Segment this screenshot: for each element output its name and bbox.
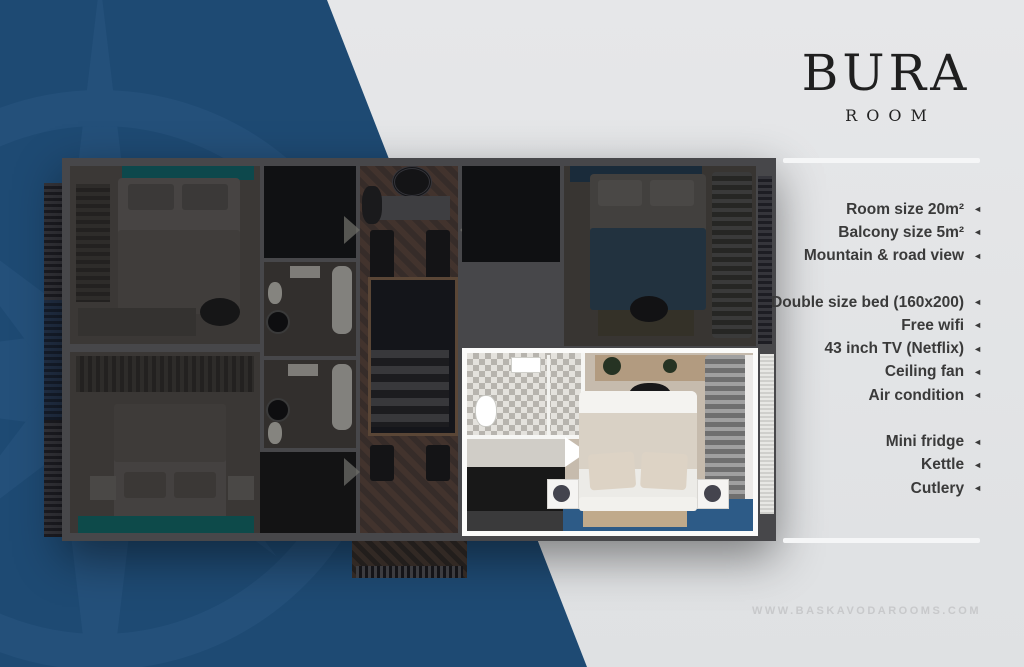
stairwell [368, 277, 458, 436]
features-list: Room size 20m²◄ Balcony size 5m²◄ Mounta… [662, 198, 982, 523]
feature-label: Balcony size 5m² [838, 224, 964, 242]
bathtub [332, 266, 352, 334]
balcony-railing [356, 566, 463, 578]
left-arrow-icon: ◄ [973, 321, 982, 330]
bench [370, 445, 394, 481]
sink [511, 357, 541, 373]
sink [290, 266, 320, 278]
pillow [182, 184, 228, 210]
toilet [268, 422, 282, 444]
left-arrow-icon: ◄ [973, 345, 982, 354]
wardrobe [76, 356, 254, 392]
mirror [266, 310, 290, 334]
nightstand [228, 476, 254, 500]
feature-item: Double size bed (160x200)◄ [662, 291, 982, 314]
landing-floor [467, 439, 565, 467]
feature-label: Double size bed (160x200) [771, 294, 964, 312]
brand-logo-subtitle: ROOM [770, 106, 1002, 125]
left-arrow-icon: ◄ [973, 484, 982, 493]
terrace-edge [467, 511, 565, 531]
feature-item: Ceiling fan◄ [662, 361, 982, 384]
feature-label: Free wifi [901, 317, 964, 335]
pillow [588, 451, 636, 490]
feature-label: Kettle [921, 456, 964, 474]
teal-balcony-floor [78, 516, 254, 533]
roof-terrace [264, 166, 356, 258]
feature-group-size: Room size 20m²◄ Balcony size 5m²◄ Mounta… [662, 198, 982, 268]
feature-item: Air condition◄ [662, 384, 982, 407]
toilet [475, 395, 497, 427]
feature-item: Balcony size 5m²◄ [662, 221, 982, 244]
roof-terrace [260, 452, 356, 533]
pillow [174, 472, 216, 498]
left-arrow-icon: ◄ [973, 461, 982, 470]
round-rug [392, 166, 432, 198]
stairs [371, 350, 449, 427]
desk [78, 308, 196, 336]
feature-label: Cutlery [911, 480, 964, 498]
pillow [128, 184, 174, 210]
pillow [598, 180, 642, 206]
plant [603, 357, 621, 375]
toilet [268, 282, 282, 304]
bura-room-flyer: BURA ROOM Room size 20m²◄ Balcony size 5… [0, 0, 1024, 667]
bench [426, 445, 450, 481]
left-arrow-icon: ◄ [973, 368, 982, 377]
bench [370, 230, 394, 280]
coat-rack [362, 186, 382, 224]
feature-label: Mountain & road view [804, 247, 964, 265]
feature-item: Mini fridge◄ [662, 430, 982, 453]
left-arrow-icon: ◄ [973, 228, 982, 237]
blanket [114, 404, 226, 462]
left-arrow-icon: ◄ [973, 391, 982, 400]
left-arrow-icon: ◄ [973, 205, 982, 214]
lamp [553, 485, 570, 502]
bathtub [332, 364, 352, 430]
feature-label: Ceiling fan [885, 363, 964, 381]
feature-label: 43 inch TV (Netflix) [825, 340, 965, 358]
chair [200, 298, 240, 326]
mirror [266, 398, 290, 422]
feature-group-kitchen: Mini fridge◄ Kettle◄ Cutlery◄ [662, 430, 982, 500]
feature-label: Mini fridge [886, 433, 964, 451]
feature-label: Air condition [869, 387, 965, 405]
left-balcony-panel [44, 300, 64, 420]
bottom-balcony [352, 541, 467, 578]
website-url: WWW.BASKAVODAROOMS.COM [752, 605, 981, 617]
feature-item: Room size 20m²◄ [662, 198, 982, 221]
sink [288, 364, 318, 376]
brand-logo: BURA [770, 48, 1002, 98]
roof-terrace [462, 166, 560, 262]
feature-item: Free wifi◄ [662, 314, 982, 337]
feature-group-comfort: Double size bed (160x200)◄ Free wifi◄ 43… [662, 291, 982, 407]
feature-item: Kettle◄ [662, 454, 982, 477]
feature-item: Mountain & road view◄ [662, 245, 982, 268]
wardrobe [76, 184, 110, 302]
section-divider-top [783, 158, 980, 163]
section-divider-bottom [783, 538, 980, 543]
nightstand [90, 476, 116, 500]
left-arrow-icon: ◄ [973, 438, 982, 447]
feature-label: Room size 20m² [846, 201, 964, 219]
feature-item: 43 inch TV (Netflix)◄ [662, 337, 982, 360]
bench [426, 230, 450, 280]
shower-glass [547, 355, 550, 435]
left-arrow-icon: ◄ [973, 298, 982, 307]
pillow [124, 472, 166, 498]
left-arrow-icon: ◄ [973, 252, 982, 261]
feature-item: Cutlery◄ [662, 477, 982, 500]
